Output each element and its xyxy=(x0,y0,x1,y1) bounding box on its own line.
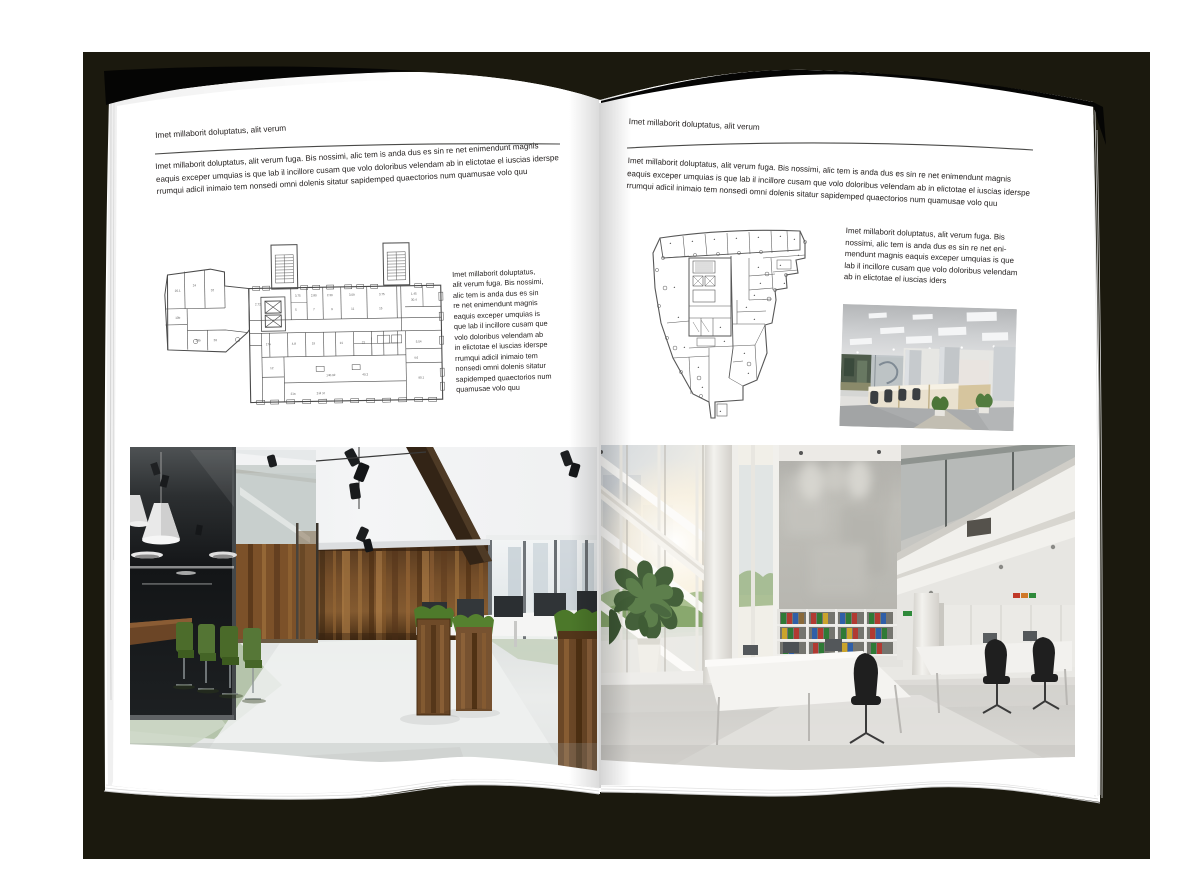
svg-text:24: 24 xyxy=(193,283,197,287)
svg-text:3.75: 3.75 xyxy=(379,292,385,296)
svg-text:▲: ▲ xyxy=(745,305,748,309)
svg-text:12: 12 xyxy=(270,366,274,370)
svg-text:▲: ▲ xyxy=(783,281,786,285)
svg-text:40.3: 40.3 xyxy=(362,372,368,376)
svg-text:▲: ▲ xyxy=(697,365,700,369)
svg-text:▲: ▲ xyxy=(743,351,746,355)
svg-text:2.30: 2.30 xyxy=(327,293,333,297)
svg-text:▲: ▲ xyxy=(757,235,760,239)
svg-text:2-й эт: 2-й эт xyxy=(317,391,326,395)
svg-text:2.72: 2.72 xyxy=(255,302,261,306)
svg-text:▲: ▲ xyxy=(747,371,750,375)
svg-text:28b: 28b xyxy=(196,338,201,342)
svg-text:▲: ▲ xyxy=(719,409,722,413)
svg-text:32: 32 xyxy=(211,288,215,292)
svg-text:▲: ▲ xyxy=(723,339,726,343)
svg-text:30.4: 30.4 xyxy=(411,298,417,302)
svg-text:▲: ▲ xyxy=(691,239,694,243)
svg-text:20.1: 20.1 xyxy=(175,289,181,293)
svg-text:▲: ▲ xyxy=(735,236,738,240)
svg-text:▲: ▲ xyxy=(669,241,672,245)
svg-text:▲: ▲ xyxy=(779,263,782,267)
svg-text:10b: 10b xyxy=(175,316,180,320)
svg-text:▲: ▲ xyxy=(779,234,782,238)
svg-text:21: 21 xyxy=(340,341,344,345)
svg-text:▲: ▲ xyxy=(793,237,796,241)
svg-text:5.54: 5.54 xyxy=(416,340,422,344)
svg-text:21a: 21a xyxy=(291,392,296,396)
svg-text:▲: ▲ xyxy=(759,281,762,285)
svg-text:▲: ▲ xyxy=(757,265,760,269)
svg-text:▲: ▲ xyxy=(719,325,722,329)
svg-text:1.45: 1.45 xyxy=(411,292,417,296)
svg-text:17a: 17a xyxy=(266,342,271,346)
svg-text:11: 11 xyxy=(351,307,355,311)
svg-text:140.92: 140.92 xyxy=(326,373,336,377)
svg-text:4.8: 4.8 xyxy=(292,342,297,346)
svg-text:19: 19 xyxy=(312,341,316,345)
svg-text:▲: ▲ xyxy=(753,317,756,321)
svg-text:▲: ▲ xyxy=(753,293,756,297)
svg-text:90.1: 90.1 xyxy=(418,375,424,379)
svg-text:3.09: 3.09 xyxy=(349,293,355,297)
svg-text:▲: ▲ xyxy=(701,385,704,389)
svg-text:3.75: 3.75 xyxy=(295,294,301,298)
svg-text:26: 26 xyxy=(214,338,218,342)
svg-text:23: 23 xyxy=(362,341,366,345)
svg-text:▲: ▲ xyxy=(673,285,676,289)
svg-text:2.80: 2.80 xyxy=(311,293,317,297)
svg-text:4.6: 4.6 xyxy=(414,356,419,360)
svg-text:▲: ▲ xyxy=(797,253,800,257)
svg-text:▲: ▲ xyxy=(713,237,716,241)
svg-text:15: 15 xyxy=(379,306,383,310)
svg-text:▲: ▲ xyxy=(683,345,686,349)
svg-text:▲: ▲ xyxy=(677,315,680,319)
